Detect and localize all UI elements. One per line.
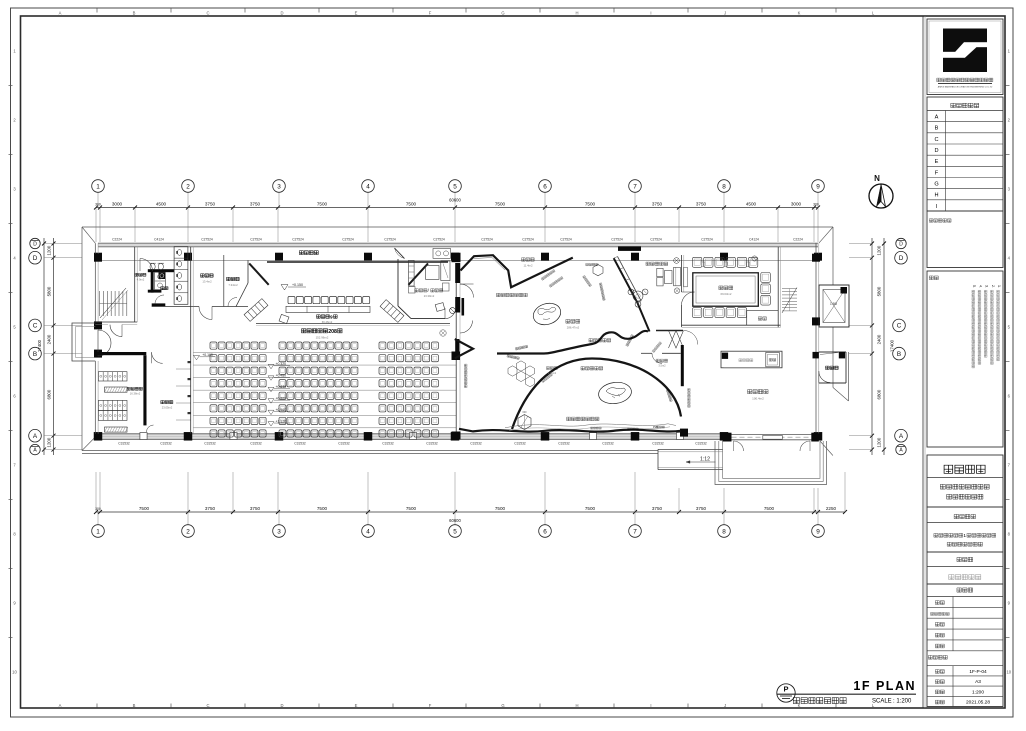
- svg-text:10: 10: [1006, 670, 1011, 675]
- svg-text:B: B: [133, 703, 136, 708]
- svg-text:J: J: [724, 11, 726, 16]
- svg-text:1.50t: 1.50t: [830, 302, 837, 306]
- svg-text:C: C: [206, 703, 209, 708]
- svg-text:23.05m2: 23.05m2: [162, 406, 173, 410]
- svg-text:: 1:200: : 1:200: [893, 699, 912, 705]
- svg-text:7500: 7500: [317, 506, 328, 511]
- svg-text:7500: 7500: [406, 202, 417, 207]
- svg-text:4.9m2: 4.9m2: [137, 278, 145, 282]
- svg-text:G: G: [501, 11, 504, 16]
- svg-text:C: C: [897, 323, 902, 330]
- svg-text:4500: 4500: [746, 202, 757, 207]
- svg-text:D: D: [899, 255, 904, 262]
- svg-text:3750: 3750: [205, 506, 216, 511]
- svg-text:7500: 7500: [495, 202, 506, 207]
- svg-text:7500: 7500: [764, 506, 775, 511]
- svg-text:1: 1: [963, 533, 966, 539]
- svg-text:2: 2: [186, 528, 190, 535]
- svg-text:K: K: [798, 703, 801, 708]
- svg-text:C31532: C31532: [118, 442, 130, 446]
- svg-text:3.: 3.: [985, 285, 989, 288]
- svg-text:A: A: [33, 433, 38, 440]
- svg-text:7500: 7500: [585, 202, 596, 207]
- svg-text:C4124: C4124: [154, 238, 164, 242]
- svg-text:60600: 60600: [449, 198, 461, 203]
- svg-text:23.39m2: 23.39m2: [424, 294, 435, 298]
- svg-text:7: 7: [633, 183, 637, 190]
- svg-text:A: A: [59, 11, 62, 16]
- svg-text:C31532: C31532: [602, 442, 614, 446]
- svg-text:3000: 3000: [791, 202, 802, 207]
- svg-text:D: D: [280, 11, 283, 16]
- svg-text:C27524: C27524: [701, 238, 713, 242]
- svg-text:8: 8: [722, 183, 726, 190]
- svg-text:A: A: [899, 433, 904, 440]
- svg-text:208: 208: [328, 329, 337, 335]
- svg-text:F: F: [429, 703, 432, 708]
- svg-text:66.46m2: 66.46m2: [322, 320, 333, 324]
- svg-text:C: C: [206, 11, 209, 16]
- svg-text:11.4m2: 11.4m2: [523, 263, 533, 267]
- svg-text:E: E: [355, 11, 358, 16]
- svg-text:H: H: [575, 11, 578, 16]
- svg-text:100.4m2: 100.4m2: [752, 397, 764, 401]
- svg-text:1F-P-04: 1F-P-04: [969, 669, 987, 675]
- svg-text:+1.120: +1.120: [276, 419, 287, 423]
- svg-text:D: D: [934, 148, 938, 154]
- svg-text:69.63m2: 69.63m2: [721, 292, 732, 296]
- svg-text:1.19m2: 1.19m2: [548, 372, 557, 375]
- svg-text:4500: 4500: [156, 202, 167, 207]
- svg-text:1: 1: [96, 183, 100, 190]
- svg-text:17400: 17400: [37, 339, 42, 352]
- svg-text:C31532: C31532: [426, 442, 438, 446]
- svg-text:152.96m2: 152.96m2: [316, 335, 329, 339]
- svg-text:7500: 7500: [139, 506, 150, 511]
- svg-text:C31532: C31532: [204, 442, 216, 446]
- svg-text:C27524: C27524: [560, 238, 572, 242]
- svg-text:5: 5: [453, 183, 457, 190]
- svg-text:8: 8: [722, 528, 726, 535]
- svg-text:5800: 5800: [47, 286, 52, 296]
- svg-text:A: A: [935, 115, 939, 121]
- svg-text:6: 6: [543, 183, 547, 190]
- svg-text:286.47m2: 286.47m2: [567, 325, 580, 329]
- svg-text:3750: 3750: [652, 202, 663, 207]
- svg-text:3.5m2: 3.5m2: [658, 364, 666, 368]
- svg-text:7500: 7500: [495, 506, 506, 511]
- svg-text:E: E: [355, 703, 358, 708]
- svg-text:3750: 3750: [696, 506, 707, 511]
- svg-text:A: A: [59, 703, 62, 708]
- svg-text:C27524: C27524: [384, 238, 396, 242]
- svg-text:5800: 5800: [877, 286, 882, 296]
- svg-text:1200: 1200: [877, 245, 882, 255]
- svg-text:C: C: [934, 137, 938, 143]
- svg-text:C27524: C27524: [650, 238, 662, 242]
- svg-text:3750: 3750: [250, 506, 261, 511]
- svg-text:3: 3: [277, 183, 281, 190]
- svg-text:60600: 60600: [449, 518, 461, 523]
- svg-text:7500: 7500: [585, 506, 596, 511]
- svg-text:P: P: [783, 685, 788, 694]
- svg-text:10: 10: [12, 670, 17, 675]
- svg-text:1:12: 1:12: [700, 456, 710, 462]
- svg-text:2021.05.28: 2021.05.28: [966, 700, 990, 706]
- svg-text:3: 3: [277, 528, 281, 535]
- svg-text:C27524: C27524: [292, 238, 304, 242]
- svg-text:D: D: [33, 255, 38, 262]
- svg-text:1F PLAN: 1F PLAN: [853, 679, 916, 693]
- svg-text:3750: 3750: [652, 506, 663, 511]
- svg-text:9: 9: [816, 183, 820, 190]
- svg-text:2: 2: [186, 183, 190, 190]
- svg-text:7500: 7500: [317, 202, 328, 207]
- svg-text:C27524: C27524: [611, 238, 623, 242]
- svg-text:C: C: [33, 323, 38, 330]
- svg-text:1200: 1200: [877, 437, 882, 447]
- svg-text:B: B: [33, 351, 37, 358]
- svg-text:6800: 6800: [47, 389, 52, 399]
- svg-text:3750: 3750: [205, 202, 216, 207]
- svg-text:1200: 1200: [47, 437, 52, 447]
- svg-text:C31532: C31532: [470, 442, 482, 446]
- svg-text:F: F: [935, 170, 939, 176]
- svg-text:1:200: 1:200: [972, 689, 984, 695]
- svg-text:C27524: C27524: [342, 238, 354, 242]
- svg-text:+0.480: +0.480: [276, 373, 287, 377]
- svg-text:C27524: C27524: [250, 238, 262, 242]
- svg-text:+0.150: +0.150: [292, 283, 303, 287]
- svg-text:G: G: [934, 182, 938, 188]
- svg-text:C27524: C27524: [481, 238, 493, 242]
- svg-text:13.4m2: 13.4m2: [202, 279, 212, 283]
- svg-text:F: F: [429, 11, 432, 16]
- svg-text:4.: 4.: [978, 285, 982, 288]
- svg-text:3750: 3750: [250, 202, 261, 207]
- svg-text:B: B: [133, 11, 136, 16]
- svg-text:7500: 7500: [406, 506, 417, 511]
- svg-text:A3: A3: [975, 679, 981, 685]
- svg-text:2.: 2.: [991, 285, 995, 288]
- svg-text:N: N: [874, 174, 880, 183]
- svg-text:B: B: [897, 351, 901, 358]
- svg-text:I: I: [650, 703, 651, 708]
- svg-text:9: 9: [816, 528, 820, 535]
- svg-text:1200: 1200: [47, 245, 52, 255]
- svg-text:2250: 2250: [826, 506, 837, 511]
- svg-text:1.: 1.: [997, 285, 1001, 288]
- svg-text:C27524: C27524: [522, 238, 534, 242]
- svg-text:C31532: C31532: [250, 442, 262, 446]
- svg-text:E: E: [935, 159, 939, 165]
- svg-text:D: D: [280, 703, 283, 708]
- svg-text:H: H: [575, 703, 578, 708]
- svg-text:3750: 3750: [696, 202, 707, 207]
- svg-text:J: J: [724, 703, 726, 708]
- svg-text:4: 4: [366, 528, 370, 535]
- svg-text:D: D: [33, 241, 37, 247]
- svg-text:H: H: [934, 193, 938, 199]
- svg-text:SCALE: SCALE: [872, 699, 892, 705]
- svg-text:G: G: [501, 703, 504, 708]
- svg-text:ANHUI BANSHAN DECORATION ENGIN: ANHUI BANSHAN DECORATION ENGINEERING CO.…: [938, 86, 993, 89]
- svg-text:C31532: C31532: [160, 442, 172, 446]
- svg-text:4: 4: [366, 183, 370, 190]
- svg-text:C31532: C31532: [294, 442, 306, 446]
- svg-text:16.38m2: 16.38m2: [130, 392, 141, 396]
- svg-text:C31532: C31532: [652, 442, 664, 446]
- svg-text:3000: 3000: [112, 202, 123, 207]
- svg-text:C31532: C31532: [695, 442, 707, 446]
- svg-text:7.34m2: 7.34m2: [228, 283, 238, 287]
- svg-text:+0.800: +0.800: [276, 396, 287, 400]
- svg-text:+0.640: +0.640: [276, 385, 287, 389]
- svg-text:1: 1: [96, 528, 100, 535]
- svg-text:600: 600: [523, 411, 528, 414]
- svg-text:7: 7: [633, 528, 637, 535]
- svg-text:5: 5: [453, 528, 457, 535]
- svg-text:6: 6: [543, 528, 547, 535]
- svg-text:C31532: C31532: [338, 442, 350, 446]
- svg-text:C31532: C31532: [558, 442, 570, 446]
- svg-text:D: D: [899, 241, 903, 247]
- svg-text:C27524: C27524: [433, 238, 445, 242]
- svg-text:K: K: [798, 11, 801, 16]
- svg-text:C31532: C31532: [514, 442, 526, 446]
- svg-text:C2224: C2224: [112, 238, 122, 242]
- svg-text:C4124: C4124: [749, 238, 759, 242]
- svg-text:C31532: C31532: [382, 442, 394, 446]
- svg-text:6800: 6800: [877, 389, 882, 399]
- svg-text:5.: 5.: [972, 285, 976, 288]
- svg-text:B: B: [935, 126, 939, 132]
- svg-text:+0.960: +0.960: [276, 408, 287, 412]
- svg-text:C27524: C27524: [201, 238, 213, 242]
- svg-text:2400: 2400: [877, 334, 882, 344]
- svg-text:C2224: C2224: [793, 238, 803, 242]
- svg-text:+0.320: +0.320: [276, 362, 287, 366]
- svg-text:I: I: [650, 11, 651, 16]
- svg-text:2400: 2400: [47, 334, 52, 344]
